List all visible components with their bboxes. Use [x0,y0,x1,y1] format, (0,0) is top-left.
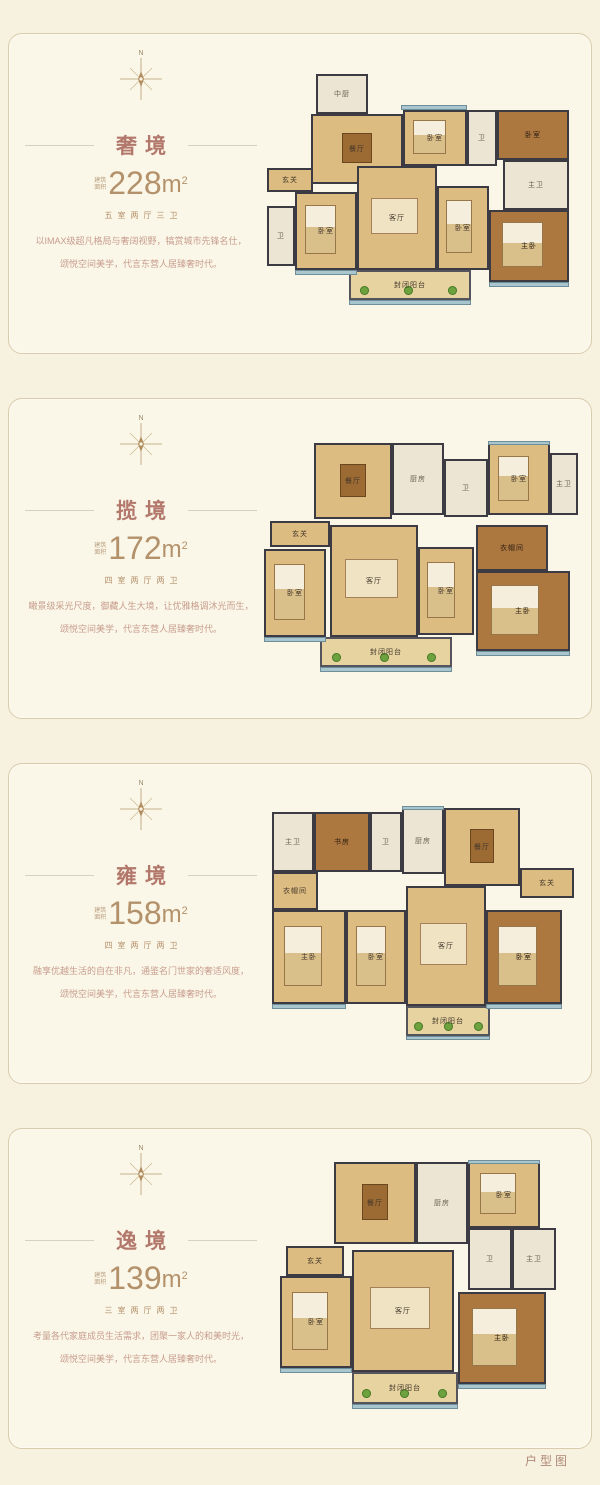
window-strip [272,1004,346,1009]
room-label: 卧室 [426,133,444,143]
title-line-left [25,875,94,876]
plant-icon [438,1389,447,1398]
description-line-2: 颂悦空间美学，代言东营人居臻奢时代。 [19,618,263,641]
room-label: 卧室 [286,588,304,598]
plant-icon [474,1022,483,1031]
plan-layout-label: 四室两厅两卫 [25,940,257,951]
window-strip [264,637,326,642]
room-pale: 主卫 [512,1228,556,1290]
plan-layout-label: 四室两厅两卫 [25,575,257,586]
room-label: 封闭阳台 [369,647,403,657]
title-line-left [25,145,94,146]
window-strip [280,1368,352,1373]
room-label: 封闭阳台 [393,280,427,290]
plan-title: 奢境 [108,130,174,160]
room-label: 卧室 [307,1317,325,1327]
room-label: 餐厅 [366,1198,384,1208]
room-label: 主卫 [555,479,573,489]
room-tan: 餐厅 [314,443,392,519]
area-superscript: 2 [182,1271,188,1281]
area-prefix-line1: 建筑 [94,1273,106,1280]
room-label: 卫 [381,837,391,847]
room-label: 衣帽间 [499,543,525,553]
floor-plan-area: 餐厅厨房卧室卫主卫玄关卧室客厅主卧封闭阳台 [259,1137,585,1440]
room-label: 卧室 [437,586,455,596]
room-tan: 客厅 [330,525,418,637]
room-label: 主卫 [525,1254,543,1264]
area-prefix-label: 建筑面积 [94,1273,106,1287]
title-line-right [188,145,257,146]
room-label: 卧室 [367,952,385,962]
room-wood: 衣帽间 [476,525,548,571]
room-label: 卧室 [510,474,528,484]
area-value: 228 [108,168,161,198]
title-line-right [188,510,257,511]
floor-plan-card: N逸境建筑面积139m2三室两厅两卫考量各代家庭成员生活需求，团聚一家人的和美时… [8,1128,592,1449]
room-label: 卫 [461,483,471,493]
room-label: 书房 [333,837,351,847]
compass-icon: N [118,46,164,109]
plant-icon [332,653,341,662]
plan-description: 考量各代家庭成员生活需求，团聚一家人的和美时光，颂悦空间美学，代言东营人居臻奢时… [19,1325,263,1371]
title-line-right [188,1240,257,1241]
plan-area: 建筑面积158m2 [25,898,257,928]
room-tan: 客厅 [352,1250,454,1372]
floor-plan-drawing: 中厨餐厅卧室卫卧室主卫玄关卫卧室客厅卧室主卧封闭阳台 [261,74,583,314]
plan-info-column: N逸境建筑面积139m2三室两厅两卫考量各代家庭成员生活需求，团聚一家人的和美时… [25,1129,257,1448]
room-label: 玄关 [538,878,556,888]
room-pale: 主卫 [550,453,578,515]
room-tan: 玄关 [520,868,574,898]
svg-text:N: N [138,415,143,422]
room-tan: 卧室 [346,910,406,1004]
window-strip [402,806,444,810]
description-line-1: 以IMAX级超凡格局与奢阔视野，犒赏城市先锋名仕， [19,230,263,253]
title-line-left [25,1240,94,1241]
room-pale: 厨房 [416,1162,468,1244]
plant-icon [360,286,369,295]
area-prefix-line2: 面积 [94,1280,106,1287]
room-label: 卫 [276,231,286,241]
room-wood: 书房 [314,812,370,872]
room-wood: 卧室 [497,110,569,160]
area-prefix-label: 建筑面积 [94,178,106,192]
room-label: 主卧 [493,1333,511,1343]
room-label: 客厅 [394,1306,412,1316]
room-tan: 主卧 [272,910,346,1004]
room-tan: 卧室 [437,186,489,270]
plan-area: 建筑面积172m2 [25,533,257,563]
room-pale: 主卫 [272,812,314,872]
room-pale: 厨房 [402,808,444,874]
room-label: 封闭阳台 [388,1383,422,1393]
room-balcony: 封闭阳台 [406,1006,490,1036]
room-tan: 餐厅 [444,808,520,886]
plan-info-column: N揽境建筑面积172m2四室两厅两卫瞰景级采光尺度，御藏人生大境，让优雅格调沐光… [25,399,257,718]
room-label: 主卧 [520,241,538,251]
room-label: 玄关 [306,1256,324,1266]
plan-area: 建筑面积228m2 [25,168,257,198]
room-pale: 卫 [444,459,488,517]
title-line-right [188,875,257,876]
description-line-1: 瞰景级采光尺度，御藏人生大境，让优雅格调沐光而生， [19,595,263,618]
room-balcony: 封闭阳台 [320,637,452,667]
plan-title: 雍境 [108,860,174,890]
plan-title-row: 逸境 [25,1225,257,1255]
room-label: 餐厅 [348,144,366,154]
room-label: 厨房 [433,1198,451,1208]
room-label: 卧室 [317,226,335,236]
description-line-2: 颂悦空间美学，代言东营人居臻奢时代。 [19,983,263,1006]
room-tan: 卧室 [418,547,474,635]
window-strip [476,651,570,656]
room-label: 客厅 [365,576,383,586]
svg-text:N: N [138,780,143,787]
title-line-left [25,510,94,511]
footer-label: 户型图 [525,1452,570,1469]
window-strip [352,1404,458,1409]
room-wood: 主卧 [458,1292,546,1384]
room-tan: 卧室 [264,549,326,637]
area-prefix-line2: 面积 [94,550,106,557]
room-tan: 卧室 [280,1276,352,1368]
room-balcony: 封闭阳台 [349,270,471,300]
room-label: 厨房 [414,836,432,846]
plan-title: 逸境 [108,1225,174,1255]
svg-text:N: N [138,1145,143,1152]
room-label: 客厅 [388,213,406,223]
room-tan: 卧室 [468,1162,540,1228]
room-label: 餐厅 [473,842,491,852]
area-prefix-line1: 建筑 [94,178,106,185]
description-line-2: 颂悦空间美学，代言东营人居臻奢时代。 [19,253,263,276]
area-superscript: 2 [182,176,188,186]
plan-title-row: 奢境 [25,130,257,160]
room-tan: 客厅 [406,886,486,1006]
plant-icon [414,1022,423,1031]
compass-icon: N [118,411,164,474]
plant-icon [448,286,457,295]
floor-plan-card: N揽境建筑面积172m2四室两厅两卫瞰景级采光尺度，御藏人生大境，让优雅格调沐光… [8,398,592,719]
room-label: 主卫 [284,837,302,847]
area-prefix-line1: 建筑 [94,543,106,550]
room-tan: 客厅 [357,166,437,270]
plan-area: 建筑面积139m2 [25,1263,257,1293]
room-wood: 主卧 [489,210,569,282]
plan-layout-label: 五室两厅三卫 [25,210,257,221]
window-strip [295,270,357,275]
window-strip [486,1004,562,1009]
room-balcony: 封闭阳台 [352,1372,458,1404]
area-value: 139 [108,1263,161,1293]
svg-text:N: N [138,50,143,57]
plan-title-row: 雍境 [25,860,257,890]
area-value: 158 [108,898,161,928]
area-unit: m [162,172,182,198]
area-unit: m [162,1267,182,1293]
room-label: 卫 [485,1254,495,1264]
room-tan: 玄关 [286,1246,344,1276]
area-prefix-label: 建筑面积 [94,543,106,557]
room-wood: 主卧 [476,571,570,651]
window-strip [349,300,471,305]
area-value: 172 [108,533,161,563]
area-prefix-line1: 建筑 [94,908,106,915]
plan-description: 融享优越生活的自在非凡，通鉴名门世家的奢适风度，颂悦空间美学，代言东营人居臻奢时… [19,960,263,1006]
floor-plan-drawing: 主卫书房卫厨房餐厅玄关衣帽间主卧卧室客厅卧室封闭阳台 [266,806,578,1041]
room-tan: 卧室 [488,443,550,515]
plan-title-row: 揽境 [25,495,257,525]
window-strip [401,105,467,110]
room-label: 中厨 [333,89,351,99]
room-pale: 卫 [370,812,402,872]
room-label: 卧室 [515,952,533,962]
room-tan: 衣帽间 [272,872,318,910]
room-pale: 中厨 [316,74,368,114]
floor-plan-card: N奢境建筑面积228m2五室两厅三卫以IMAX级超凡格局与奢阔视野，犒赏城市先锋… [8,33,592,354]
room-label: 卧室 [454,223,472,233]
description-line-1: 融享优越生活的自在非凡，通鉴名门世家的奢适风度， [19,960,263,983]
room-pale: 主卫 [503,160,569,210]
window-strip [488,441,550,445]
window-strip [489,282,569,287]
room-tan: 玄关 [270,521,330,547]
floor-plan-area: 主卫书房卫厨房餐厅玄关衣帽间主卧卧室客厅卧室封闭阳台 [259,772,585,1075]
plan-title: 揽境 [108,495,174,525]
floor-plan-drawing: 餐厅厨房卫卧室主卫玄关卧室客厅卧室衣帽间主卧封闭阳台 [262,441,582,676]
room-tan: 卧室 [295,192,357,270]
room-label: 玄关 [291,529,309,539]
area-prefix-label: 建筑面积 [94,908,106,922]
compass-icon: N [118,1141,164,1204]
area-superscript: 2 [182,541,188,551]
description-line-1: 考量各代家庭成员生活需求，团聚一家人的和美时光， [19,1325,263,1348]
room-label: 玄关 [281,175,299,185]
room-tan: 卧室 [403,110,467,166]
description-line-2: 颂悦空间美学，代言东营人居臻奢时代。 [19,1348,263,1371]
room-label: 厨房 [409,474,427,484]
area-superscript: 2 [182,906,188,916]
plant-icon [362,1389,371,1398]
area-prefix-line2: 面积 [94,185,106,192]
plant-icon [427,653,436,662]
window-strip [458,1384,546,1389]
window-strip [406,1036,490,1040]
area-unit: m [162,902,182,928]
room-label: 主卧 [514,606,532,616]
room-tan: 餐厅 [334,1162,416,1244]
plan-info-column: N雍境建筑面积158m2四室两厅两卫融享优越生活的自在非凡，通鉴名门世家的奢适风… [25,764,257,1083]
room-label: 餐厅 [344,476,362,486]
room-label: 卫 [477,133,487,143]
area-prefix-line2: 面积 [94,915,106,922]
floor-plan-area: 餐厅厨房卫卧室主卫玄关卧室客厅卧室衣帽间主卧封闭阳台 [259,407,585,710]
room-wood: 卧室 [486,910,562,1004]
window-strip [320,667,452,672]
room-pale: 厨房 [392,443,444,515]
area-unit: m [162,537,182,563]
room-label: 卧室 [524,130,542,140]
room-label: 衣帽间 [282,886,308,896]
plan-info-column: N奢境建筑面积228m2五室两厅三卫以IMAX级超凡格局与奢阔视野，犒赏城市先锋… [25,34,257,353]
window-strip [468,1160,540,1164]
room-label: 主卫 [527,180,545,190]
floor-plan-drawing: 餐厅厨房卧室卫主卫玄关卧室客厅主卧封闭阳台 [272,1160,572,1418]
room-label: 封闭阳台 [431,1016,465,1026]
floor-plan-card: N雍境建筑面积158m2四室两厅两卫融享优越生活的自在非凡，通鉴名门世家的奢适风… [8,763,592,1084]
floor-plan-area: 中厨餐厅卧室卫卧室主卫玄关卫卧室客厅卧室主卧封闭阳台 [259,42,585,345]
plan-description: 瞰景级采光尺度，御藏人生大境，让优雅格调沐光而生，颂悦空间美学，代言东营人居臻奢… [19,595,263,641]
compass-icon: N [118,776,164,839]
plan-layout-label: 三室两厅两卫 [25,1305,257,1316]
room-pale: 卫 [267,206,295,266]
room-pale: 卫 [467,110,497,166]
room-tan: 玄关 [267,168,313,192]
room-pale: 卫 [468,1228,512,1290]
room-label: 卧室 [495,1190,513,1200]
room-label: 客厅 [437,941,455,951]
room-label: 主卧 [300,952,318,962]
plan-description: 以IMAX级超凡格局与奢阔视野，犒赏城市先锋名仕，颂悦空间美学，代言东营人居臻奢… [19,230,263,276]
